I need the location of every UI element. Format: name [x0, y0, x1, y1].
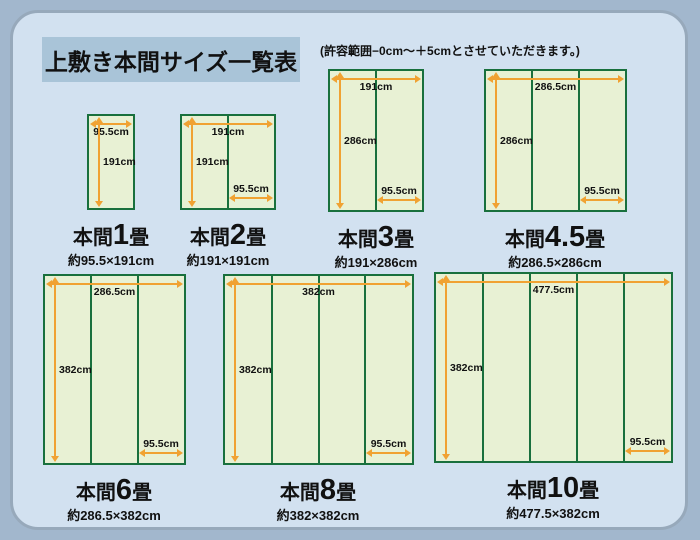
mat-divider-line: [364, 276, 366, 463]
width-dimension-label: 286.5cm: [45, 286, 184, 298]
mat-count-number: 2: [230, 219, 246, 251]
mat-width-label: 95.5cm: [579, 185, 625, 197]
height-dimension-arrow: [445, 277, 447, 458]
tatami-mat-diagram: 477.5cm382cm95.5cm: [434, 272, 673, 463]
mat-name-suffix: 畳: [132, 482, 152, 504]
mat-name-suffix: 畳: [246, 227, 266, 249]
tatami-mat-diagram: 382cm382cm95.5cm: [223, 274, 414, 465]
height-dimension-label: 191cm: [103, 156, 136, 168]
mat-width-label: 95.5cm: [138, 438, 184, 450]
mat-width-label: 95.5cm: [376, 185, 422, 197]
height-dimension-label: 382cm: [59, 364, 92, 376]
mat-divider-line: [137, 276, 139, 463]
tatami-mat-diagram: 191cm191cm95.5cm: [180, 114, 276, 210]
height-dimension-label: 286cm: [500, 135, 533, 147]
mat-count-number: 3: [378, 221, 394, 253]
mat-size-label: 約286.5×382cm: [4, 505, 224, 524]
mat-width-arrow: [141, 452, 181, 454]
mat-name-suffix: 畳: [585, 229, 605, 251]
mat-name-label: 本間4.5畳: [445, 225, 665, 254]
width-dimension-label: 95.5cm: [89, 126, 133, 138]
mat-count-number: 6: [116, 474, 132, 506]
tatami-mat-diagram: 286.5cm286cm95.5cm: [484, 69, 627, 212]
mat-divider-line: [623, 274, 625, 461]
mat-name-label: 本間8畳: [208, 478, 428, 507]
mat-divider-line: [529, 274, 531, 461]
mat-name-prefix: 本間: [507, 480, 547, 502]
mat-width-arrow: [582, 199, 622, 201]
mat-name-label: 本間10畳: [443, 476, 663, 505]
width-dimension-arrow: [439, 281, 668, 283]
mat-width-arrow: [231, 197, 271, 199]
width-dimension-arrow: [48, 283, 181, 285]
mat-width-label: 95.5cm: [624, 436, 671, 448]
tatami-mat-diagram: 95.5cm191cm: [87, 114, 135, 210]
mat-width-arrow: [368, 452, 409, 454]
mat-count-number: 10: [547, 472, 579, 504]
width-dimension-label: 382cm: [225, 286, 412, 298]
height-dimension-label: 382cm: [450, 362, 483, 374]
width-dimension-label: 191cm: [330, 81, 422, 93]
tatami-mat-diagram: 286.5cm382cm95.5cm: [43, 274, 186, 465]
mat-name-prefix: 本間: [76, 482, 116, 504]
height-dimension-arrow: [495, 74, 497, 207]
mat-name-prefix: 本間: [190, 227, 230, 249]
mat-count-number: 8: [320, 474, 336, 506]
mat-width-arrow: [379, 199, 419, 201]
mat-divider-line: [576, 274, 578, 461]
width-dimension-arrow: [333, 78, 419, 80]
mat-width-label: 95.5cm: [228, 183, 274, 195]
tatami-mat-diagram: 191cm286cm95.5cm: [328, 69, 424, 212]
mat-width-label: 95.5cm: [365, 438, 412, 450]
height-dimension-arrow: [98, 119, 100, 205]
mat-name-prefix: 本間: [280, 482, 320, 504]
mat-name-prefix: 本間: [73, 227, 113, 249]
height-dimension-arrow: [54, 279, 56, 460]
mat-name-prefix: 本間: [505, 229, 545, 251]
mat-name-prefix: 本間: [338, 229, 378, 251]
width-dimension-label: 477.5cm: [436, 284, 671, 296]
diagrams-layer: 95.5cm191cm本間1畳約95.5×191cm191cm191cm95.5…: [0, 0, 700, 540]
mat-name-suffix: 畳: [579, 480, 599, 502]
mat-name-suffix: 畳: [394, 229, 414, 251]
width-dimension-label: 191cm: [182, 126, 274, 138]
mat-count-number: 4.5: [545, 221, 585, 253]
mat-divider-line: [318, 276, 320, 463]
width-dimension-label: 286.5cm: [486, 81, 625, 93]
mat-name-label: 本間6畳: [4, 478, 224, 507]
height-dimension-arrow: [234, 279, 236, 460]
width-dimension-arrow: [228, 283, 409, 285]
mat-name-suffix: 畳: [336, 482, 356, 504]
height-dimension-arrow: [339, 74, 341, 207]
height-dimension-label: 191cm: [196, 156, 229, 168]
mat-size-label: 約477.5×382cm: [443, 503, 663, 522]
height-dimension-label: 382cm: [239, 364, 272, 376]
mat-width-arrow: [627, 450, 668, 452]
height-dimension-arrow: [191, 119, 193, 205]
width-dimension-arrow: [489, 78, 622, 80]
width-dimension-arrow: [185, 123, 271, 125]
height-dimension-label: 286cm: [344, 135, 377, 147]
mat-size-label: 約286.5×286cm: [445, 252, 665, 271]
mat-size-label: 約382×382cm: [208, 505, 428, 524]
size-chart-image: { "title": "上敷き本間サイズ一覧表", "note": "(許容範囲…: [0, 0, 700, 540]
